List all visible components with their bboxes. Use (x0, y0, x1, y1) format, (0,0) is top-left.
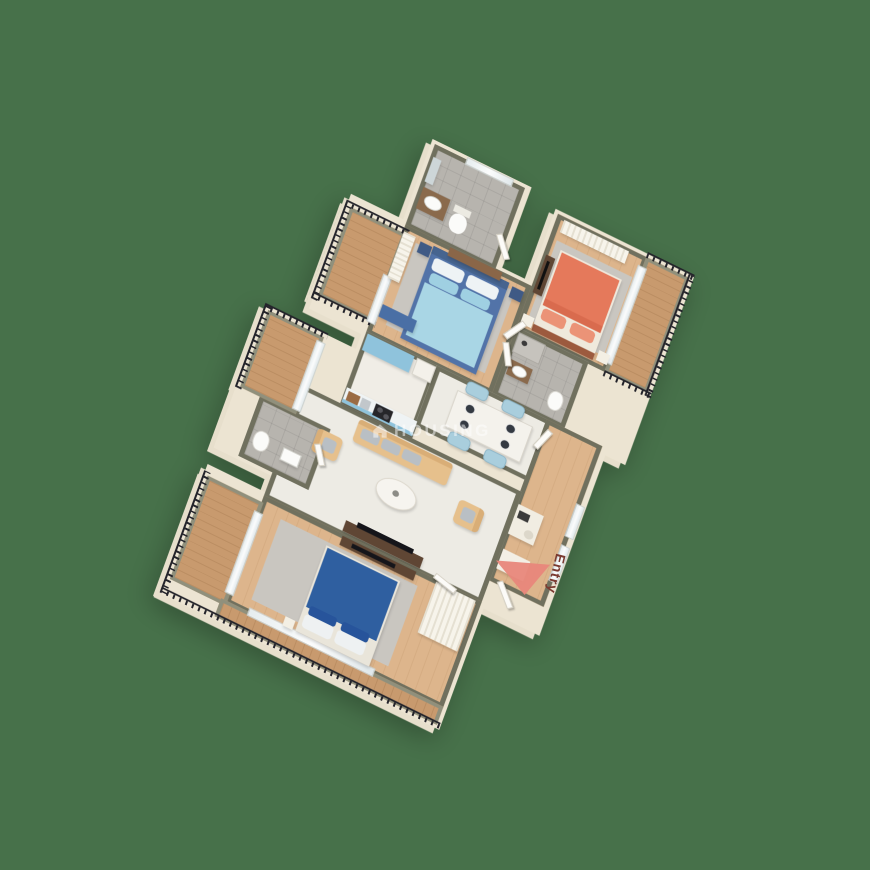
floorplan-scene: Entry HOUSING (0, 0, 870, 870)
house-icon (372, 423, 388, 439)
watermark-text: HOUSING (394, 421, 491, 441)
housing-watermark: HOUSING (372, 421, 491, 441)
